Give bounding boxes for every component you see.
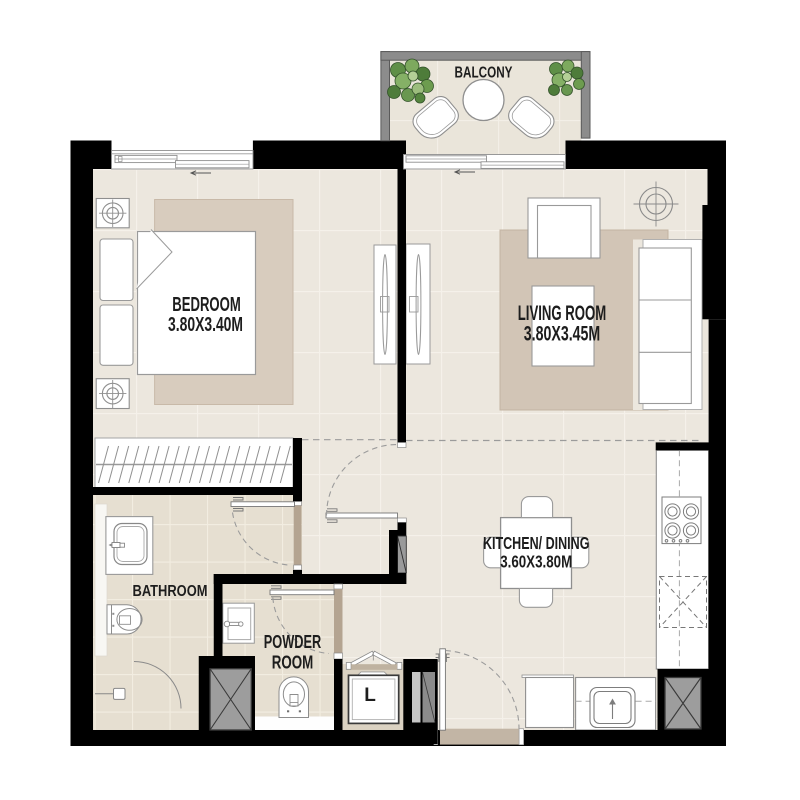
svg-text:3.80X3.45M: 3.80X3.45M: [524, 321, 601, 345]
svg-text:BALCONY: BALCONY: [455, 65, 513, 82]
svg-text:ROOM: ROOM: [272, 651, 314, 672]
svg-text:BATHROOM: BATHROOM: [133, 583, 208, 600]
svg-text:L: L: [364, 685, 376, 706]
svg-text:POWDER: POWDER: [264, 631, 322, 652]
svg-text:KITCHEN/ DINING: KITCHEN/ DINING: [483, 533, 590, 553]
svg-text:3.60X3.80M: 3.60X3.80M: [500, 551, 572, 571]
svg-text:3.80X3.40M: 3.80X3.40M: [168, 313, 243, 336]
